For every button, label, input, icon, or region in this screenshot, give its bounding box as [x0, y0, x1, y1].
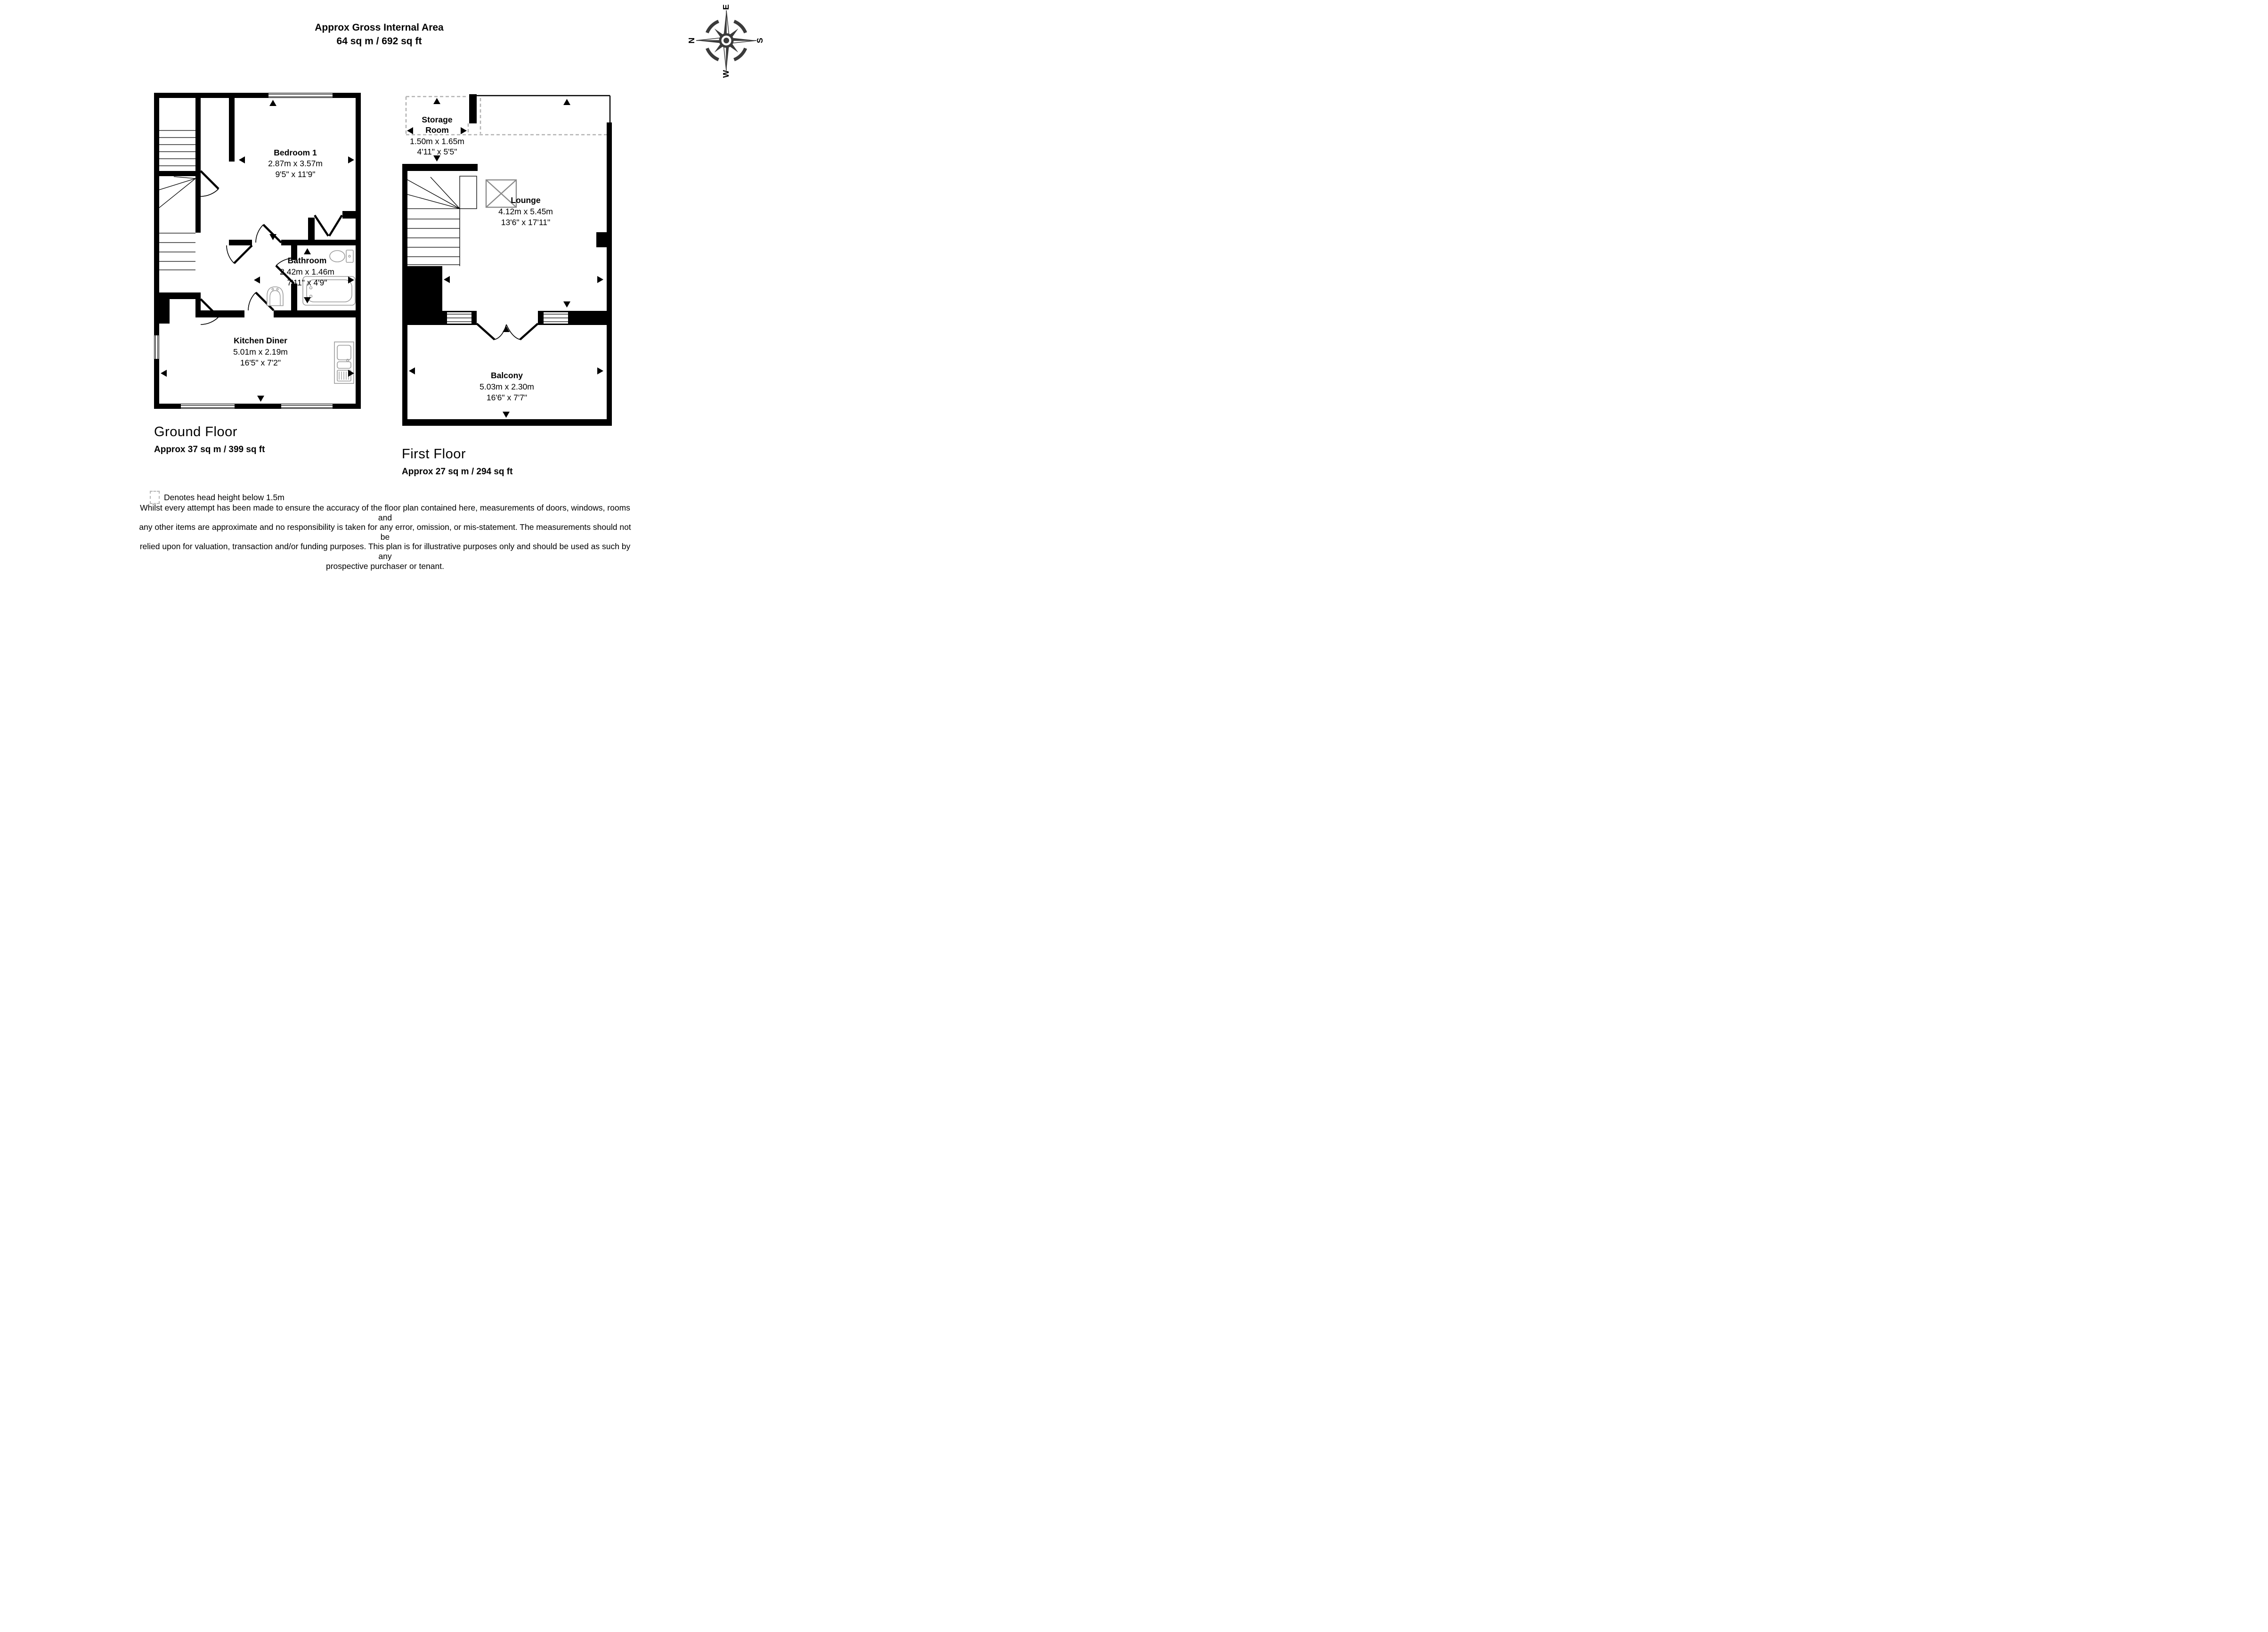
- compass-n-label: N: [689, 38, 696, 44]
- gf-bathroom-dim-imperial: 7'11" x 4'9": [287, 278, 327, 287]
- ff-balcony-dim-imperial: 16'6" x 7'7": [487, 393, 527, 402]
- ff-lounge-label: Lounge: [511, 195, 540, 205]
- head-height-legend: Denotes head height below 1.5m: [150, 491, 285, 504]
- gf-bathroom-dim-metric: 2.42m x 1.46m: [280, 267, 334, 276]
- compass-rose-icon: N E S W: [689, 3, 764, 78]
- first-floor-caption: First Floor: [402, 447, 466, 462]
- gf-kitchen-dim-metric: 5.01m x 2.19m: [233, 347, 288, 357]
- gf-closet-doors: [315, 215, 342, 236]
- kitchen-sink-symbol: [334, 342, 354, 383]
- gf-kitchen-dim-imperial: 16'5" x 7'2": [240, 358, 281, 367]
- bathroom-sink-symbol: [267, 287, 283, 306]
- head-height-dashed-icon: [150, 491, 160, 504]
- ff-storage-label-line2: Room: [425, 125, 449, 135]
- disclaimer-line: prospective purchaser or tenant.: [134, 561, 636, 571]
- gf-bathroom-label: Bathroom: [288, 256, 327, 265]
- disclaimer-line: any other items are approximate and no r…: [134, 522, 636, 542]
- gf-bedroom-label: Bedroom 1: [274, 148, 317, 157]
- ff-storage-dim-metric: 1.50m x 1.65m: [410, 137, 464, 146]
- ff-balcony-dim-metric: 5.03m x 2.30m: [480, 382, 534, 391]
- gf-kitchen-label: Kitchen Diner: [234, 336, 287, 345]
- disclaimer-line: Whilst every attempt has been made to en…: [134, 503, 636, 522]
- first-floor-area: Approx 27 sq m / 294 sq ft: [402, 467, 512, 477]
- compass-hub-dot: [723, 38, 729, 43]
- ground-floor-area: Approx 37 sq m / 399 sq ft: [154, 445, 265, 455]
- compass-e-label: E: [721, 4, 731, 10]
- ground-floor-caption: Ground Floor: [154, 424, 237, 440]
- title-line1: Approx Gross Internal Area: [315, 21, 443, 34]
- compass-w-label: W: [721, 70, 731, 78]
- page-title: Approx Gross Internal Area 64 sq m / 692…: [315, 21, 443, 48]
- ff-windows: [447, 312, 568, 324]
- ff-balcony-label: Balcony: [491, 371, 523, 380]
- ff-stairs: [406, 176, 477, 266]
- gf-stairs: [159, 130, 195, 270]
- ff-roof-outline: [477, 96, 610, 123]
- gf-bedroom-dim-imperial: 9'5" x 11'9": [276, 170, 316, 179]
- first-floor-plan: Storage Room 1.50m x 1.65m 4'11" x 5'5" …: [402, 94, 612, 426]
- gf-bedroom-dim-metric: 2.87m x 3.57m: [268, 159, 323, 168]
- disclaimer-line: relied upon for valuation, transaction a…: [134, 542, 636, 561]
- disclaimer: Whilst every attempt has been made to en…: [134, 503, 636, 571]
- ground-floor-plan: Bedroom 1 2.87m x 3.57m 9'5" x 11'9" Bat…: [154, 93, 361, 409]
- ff-storage-dim-imperial: 4'11" x 5'5": [417, 147, 457, 156]
- toilet-symbol: [330, 250, 353, 262]
- ff-lounge-dim-metric: 4.12m x 5.45m: [498, 207, 553, 216]
- ff-lounge-dim-imperial: 13'6" x 17'11": [501, 218, 550, 227]
- title-line2: 64 sq m / 692 sq ft: [315, 34, 443, 48]
- compass-s-label: S: [755, 38, 764, 43]
- ff-storage-label-line1: Storage: [422, 115, 452, 124]
- head-height-legend-text: Denotes head height below 1.5m: [164, 493, 285, 503]
